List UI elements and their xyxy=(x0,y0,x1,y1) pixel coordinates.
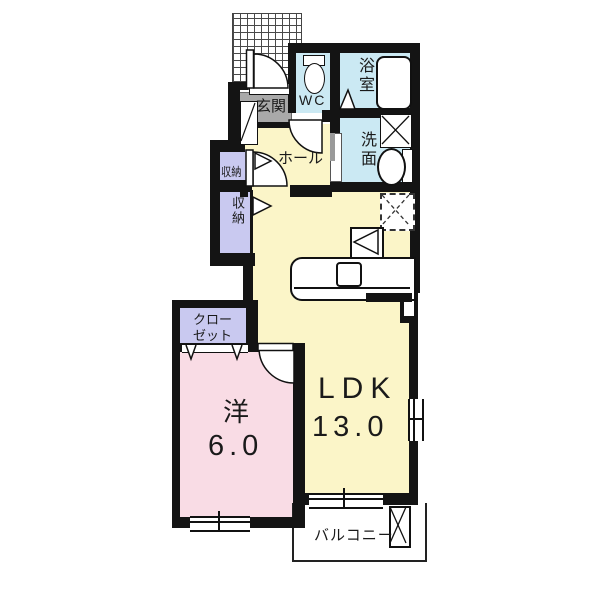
room-label-hall: ホール xyxy=(278,147,323,168)
washer-pan-icon xyxy=(380,114,412,148)
kitchen-sink xyxy=(336,262,362,287)
room-label-closet-line2: ゼット xyxy=(193,325,232,344)
window-western-room-rail xyxy=(190,521,250,523)
wall xyxy=(330,53,340,111)
wall xyxy=(290,185,332,197)
kitchen-appliance-box xyxy=(350,227,384,261)
room-label-storage-upper: 収納 xyxy=(221,163,241,180)
room-size-ldk: 13.0 xyxy=(312,411,388,444)
window-western-room xyxy=(190,516,250,532)
window-balcony-door xyxy=(309,493,383,509)
kitchen-counter-edge xyxy=(294,287,410,289)
room-label-bathroom: 浴室 xyxy=(352,57,376,95)
room-label-washroom: 洗面 xyxy=(354,131,378,169)
wall xyxy=(228,82,248,90)
room-label-western: 洋 xyxy=(223,392,249,429)
washbasin-icon xyxy=(377,148,406,186)
sliding-door-washroom-panel xyxy=(330,133,335,161)
wall xyxy=(228,82,240,144)
floorplan: 玄関 WC 浴室 洗面 ホール 収納 収納 クロー ゼット 洋 6.0 LDK … xyxy=(0,0,600,600)
closet-opening xyxy=(182,344,248,353)
window-ldk-side-rail xyxy=(413,399,415,441)
wall xyxy=(210,140,220,266)
refrigerator-space-icon xyxy=(380,193,415,231)
window-balcony-door-tick xyxy=(343,488,345,509)
wall xyxy=(409,322,418,400)
room-label-wc: WC xyxy=(299,92,326,108)
wall xyxy=(330,182,412,192)
entrance-step xyxy=(249,83,290,95)
room-label-balcony: バルコニー xyxy=(314,524,394,545)
room-size-western: 6.0 xyxy=(208,430,263,463)
toilet-bowl-icon xyxy=(304,63,325,94)
wall xyxy=(409,438,418,498)
window-western-room-tick xyxy=(218,511,220,532)
kitchen-counter-base xyxy=(366,293,412,302)
wall xyxy=(210,180,252,192)
window-balcony-door-rail xyxy=(309,498,383,500)
room-label-ldk: LDK xyxy=(318,372,397,406)
storage-upper-door xyxy=(250,151,253,181)
bathtub-icon xyxy=(376,56,412,110)
window-ldk-side xyxy=(408,399,424,441)
room-label-storage-lower: 収納 xyxy=(228,196,247,226)
room-label-entrance: 玄関 xyxy=(256,95,286,116)
wall xyxy=(288,43,420,53)
window-ldk-side-tick xyxy=(409,418,423,420)
wall xyxy=(172,300,180,528)
